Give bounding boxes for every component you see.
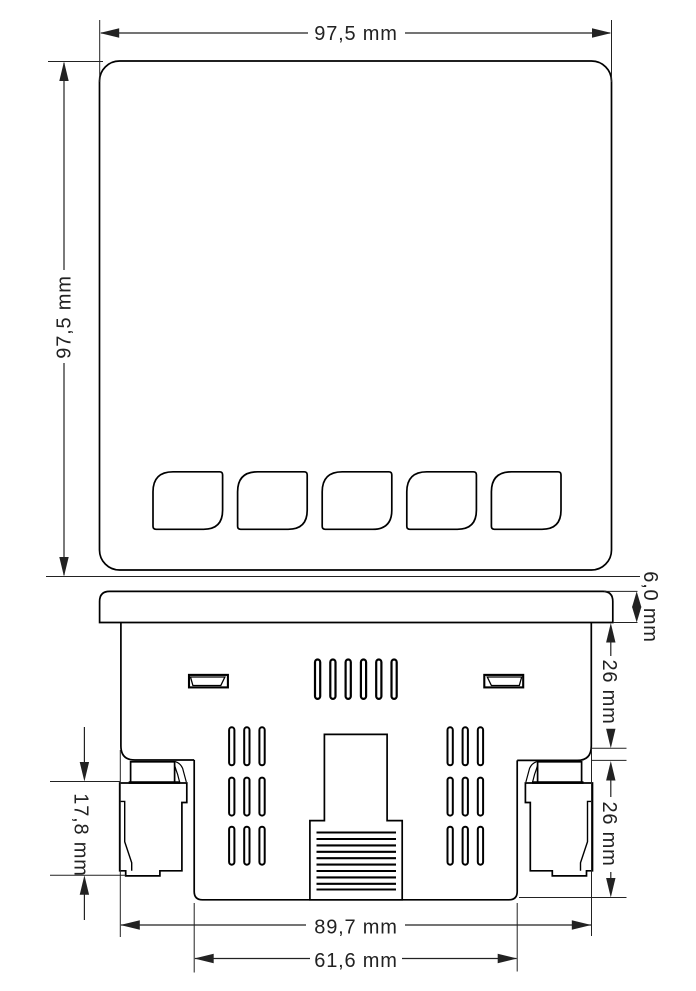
svg-text:26 mm: 26 mm [598,801,620,866]
svg-text:61,6 mm: 61,6 mm [314,950,397,972]
svg-text:6,0 mm: 6,0 mm [639,571,661,642]
svg-text:26 mm: 26 mm [598,659,620,724]
svg-text:97,5 mm: 97,5 mm [314,23,397,45]
svg-text:97,5 mm: 97,5 mm [54,275,76,358]
svg-text:89,7 mm: 89,7 mm [314,917,397,939]
svg-text:17,8 mm: 17,8 mm [70,793,92,876]
